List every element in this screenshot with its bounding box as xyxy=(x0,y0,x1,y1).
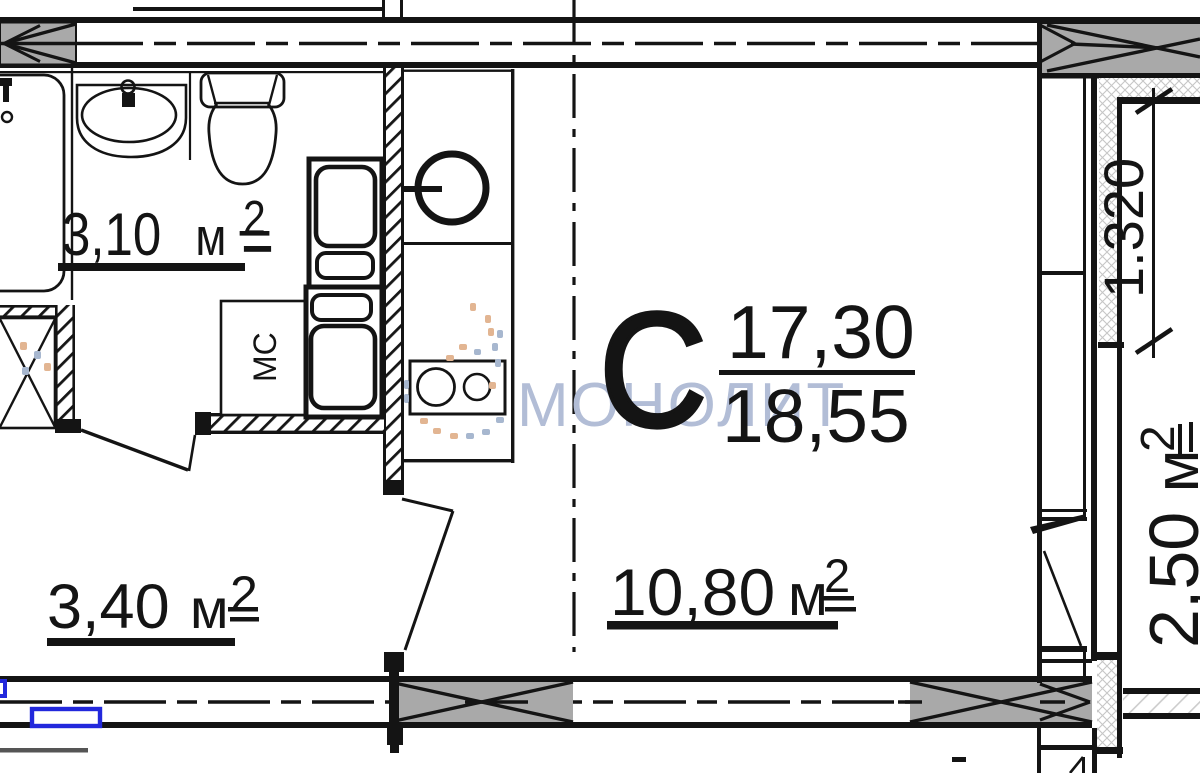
svg-text:МС: МС xyxy=(247,332,283,382)
svg-text:17,30: 17,30 xyxy=(727,290,915,374)
svg-text:C: C xyxy=(599,279,707,461)
svg-text:м: м xyxy=(195,208,226,267)
svg-text:3,10: 3,10 xyxy=(62,201,161,268)
svg-text:м: м xyxy=(788,563,828,628)
svg-text:2: 2 xyxy=(1132,425,1185,452)
svg-text:3,40: 3,40 xyxy=(47,572,170,642)
svg-text:2: 2 xyxy=(230,566,258,622)
svg-text:2,50 м: 2,50 м xyxy=(1135,450,1200,648)
svg-text:1.320: 1.320 xyxy=(1092,158,1155,298)
svg-text:18,55: 18,55 xyxy=(722,374,910,458)
svg-text:10,80: 10,80 xyxy=(610,555,775,629)
svg-text:2: 2 xyxy=(243,192,266,245)
svg-text:2: 2 xyxy=(824,549,850,602)
svg-text:м: м xyxy=(190,577,229,640)
